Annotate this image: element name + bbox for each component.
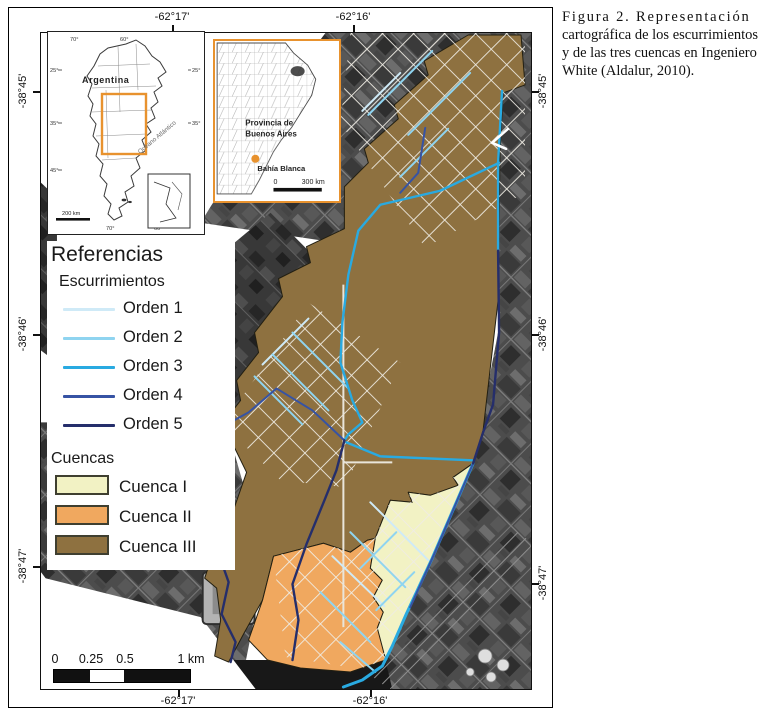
tick-top-2: [353, 25, 355, 32]
bahia-blanca-marker: [251, 155, 259, 163]
svg-text:70°: 70°: [70, 37, 78, 43]
svg-text:300 km: 300 km: [302, 179, 325, 186]
lon-label-bottom-1: -62°17': [161, 695, 196, 707]
antarctica-mini-inset: [148, 174, 190, 228]
svg-text:60°: 60°: [120, 37, 128, 43]
lon-label-bottom-2: -62°16': [353, 695, 388, 707]
malvinas-icon: [122, 199, 127, 202]
legend-basins-heading: Cuencas: [51, 450, 235, 468]
lat-label-right-3: -38°47': [537, 566, 549, 601]
lat-label-right-1: -38°45': [537, 74, 549, 109]
inset-argentina-scalebar: 200 km: [56, 211, 90, 221]
cuenca-ii-swatch: [55, 505, 109, 525]
figure-caption: Figura 2. Representación cartográfica de…: [562, 8, 780, 80]
province-label-1: Provincia de: [245, 119, 293, 128]
lat-label-right-2: -38°46': [537, 317, 549, 352]
province-label-2: Buenos Aires: [245, 130, 297, 139]
cuenca-iii-swatch: [55, 535, 109, 555]
svg-text:45°: 45°: [50, 168, 58, 174]
lon-label-top-1: -62°17': [155, 11, 190, 23]
inset-buenos-aires: Provincia de Buenos Aires Bahía Blanca 0…: [213, 39, 341, 203]
orden-4-line-swatch: [63, 395, 115, 398]
cuenca-i-swatch: [55, 475, 109, 495]
legend-row-orden-3: Orden 3: [47, 353, 235, 382]
legend-row-cuenca-i: Cuenca I: [47, 472, 235, 502]
caption-line: y de las tres cuencas en Ingeniero: [562, 44, 780, 62]
lat-label-left-2: -38°46': [17, 317, 29, 352]
svg-text:35°: 35°: [50, 121, 58, 127]
tick-left-3: [33, 566, 40, 568]
legend-row-orden-5: Orden 5: [47, 411, 235, 440]
legend-row-cuenca-ii: Cuenca II: [47, 502, 235, 532]
scalebar-label-025: 0.25: [79, 652, 103, 666]
country-label: Argentina: [82, 75, 130, 85]
lat-label-left-3: -38°47': [17, 549, 29, 584]
lat-label-left-1: -38°45': [17, 74, 29, 109]
scalebar-label-1km: 1 km: [177, 652, 204, 666]
orden-1-line-swatch: [63, 308, 115, 311]
tick-left-2: [33, 334, 40, 336]
scalebar-bar: [53, 669, 191, 683]
svg-text:25°: 25°: [50, 68, 58, 74]
dense-area: [291, 66, 305, 76]
lon-label-top-2: -62°16': [336, 11, 371, 23]
tick-left-1: [33, 91, 40, 93]
legend-streams-heading: Escurrimientos: [59, 273, 235, 291]
figure-page: -62°17' -62°16' -62°17' -62°16' -38°45' …: [0, 0, 783, 714]
orden-5-line-swatch: [63, 424, 115, 427]
svg-text:35°: 35°: [192, 121, 200, 127]
legend-row-cuenca-iii: Cuenca III: [47, 532, 235, 562]
caption-line: cartográfica de los escurrimientos: [562, 26, 780, 44]
caption-line: White (Aldalur, 2010).: [562, 62, 780, 80]
inset-argentina: Argentina Océano Atlántico 25° 35° 45° 2…: [47, 31, 205, 235]
svg-text:200 km: 200 km: [62, 211, 81, 217]
legend-title: Referencias: [51, 243, 235, 267]
caption-line: Figura 2. Representación: [562, 8, 780, 26]
map-scalebar: 0 0.25 0.5 1 km: [49, 652, 219, 686]
legend-row-orden-4: Orden 4: [47, 382, 235, 411]
legend-row-orden-2: Orden 2: [47, 324, 235, 353]
city-label: Bahía Blanca: [257, 164, 306, 173]
inset-ba-scalebar: 0 300 km: [273, 179, 324, 192]
svg-text:25°: 25°: [192, 68, 200, 74]
svg-text:0: 0: [273, 179, 277, 186]
orden-2-line-swatch: [63, 337, 115, 340]
orden-3-line-swatch: [63, 366, 115, 369]
map-legend: Referencias Escurrimientos Orden 1 Orden…: [47, 241, 235, 570]
legend-row-orden-1: Orden 1: [47, 295, 235, 324]
svg-text:70°: 70°: [106, 226, 114, 232]
scalebar-label-0: 0: [52, 652, 59, 666]
figure-panel: -62°17' -62°16' -62°17' -62°16' -38°45' …: [8, 7, 553, 708]
scalebar-label-05: 0.5: [116, 652, 133, 666]
